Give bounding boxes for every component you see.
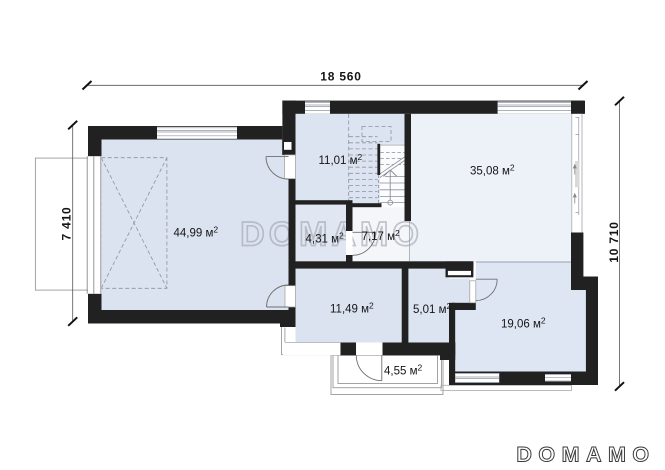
svg-text:DOMAMO: DOMAMO <box>516 443 655 467</box>
svg-text:11,01 м2: 11,01 м2 <box>319 152 363 167</box>
svg-text:4,31 м2: 4,31 м2 <box>306 231 344 246</box>
svg-text:7 410: 7 410 <box>60 206 74 240</box>
svg-text:11,49 м2: 11,49 м2 <box>330 301 374 316</box>
svg-text:19,06 м2: 19,06 м2 <box>501 316 546 331</box>
svg-text:18 560: 18 560 <box>320 69 362 83</box>
svg-text:4,55 м2: 4,55 м2 <box>384 362 422 377</box>
svg-text:44,99 м2: 44,99 м2 <box>174 225 219 240</box>
svg-text:7,17 м2: 7,17 м2 <box>362 228 400 243</box>
svg-text:35,08 м2: 35,08 м2 <box>470 163 515 178</box>
svg-text:10 710: 10 710 <box>607 221 621 263</box>
svg-text:5,01 м2: 5,01 м2 <box>413 301 451 316</box>
